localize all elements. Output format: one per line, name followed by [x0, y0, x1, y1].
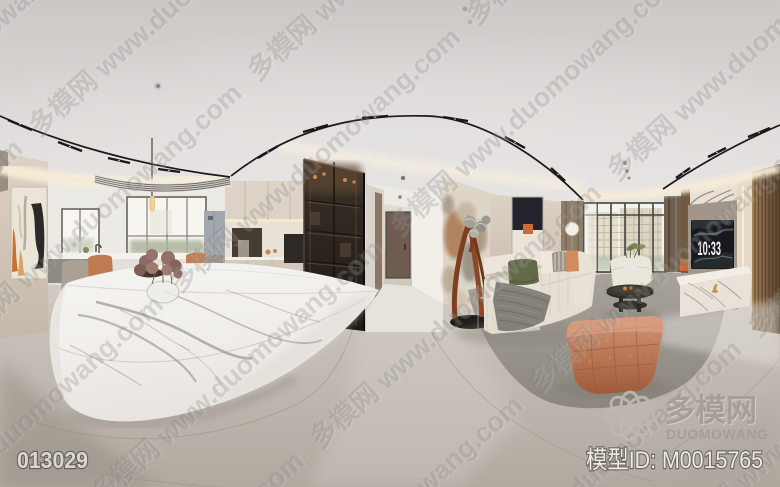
svg-text:013029: 013029: [17, 447, 88, 473]
svg-text:模型ID: M0015765: 模型ID: M0015765: [586, 446, 763, 474]
svg-text:多模网: 多模网: [664, 393, 757, 428]
svg-text:DUOMOWANG: DUOMOWANG: [666, 426, 769, 442]
